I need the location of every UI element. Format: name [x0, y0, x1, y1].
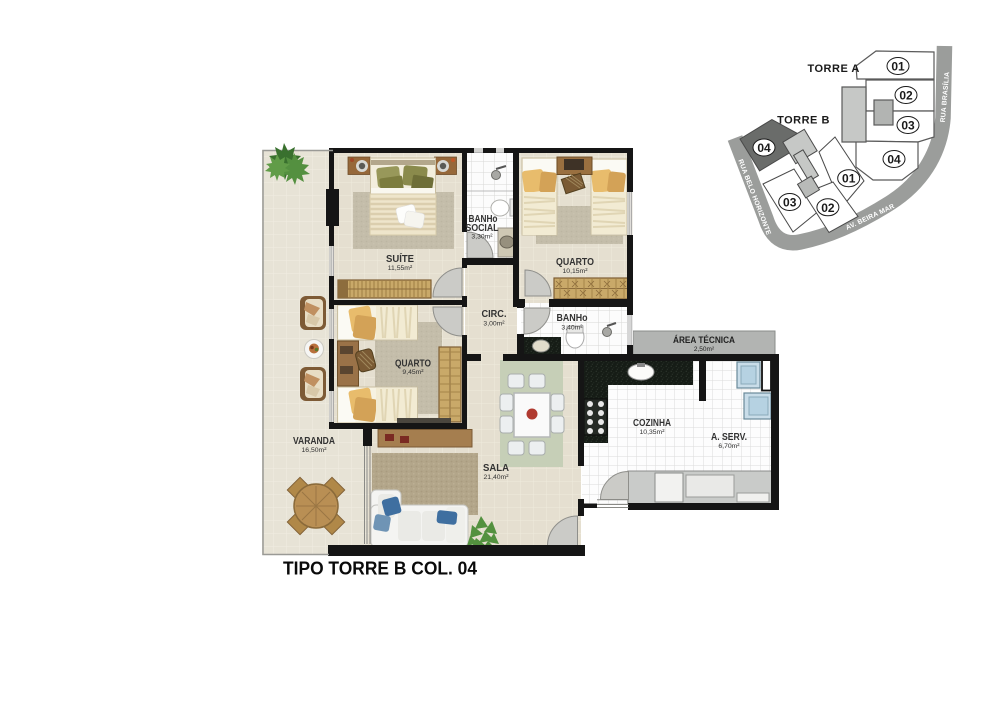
svg-text:TIPO TORRE B COL. 04: TIPO TORRE B COL. 04: [283, 559, 477, 579]
svg-text:QUARTO: QUARTO: [395, 359, 431, 370]
svg-text:02: 02: [899, 89, 913, 103]
svg-text:02: 02: [821, 201, 835, 215]
svg-text:03: 03: [783, 196, 797, 210]
svg-text:04: 04: [887, 153, 901, 167]
svg-text:SALA: SALA: [483, 463, 509, 474]
svg-text:COZINHA: COZINHA: [633, 418, 671, 429]
svg-text:21,40m²: 21,40m²: [484, 474, 510, 481]
svg-text:ÁREA TÉCNICA: ÁREA TÉCNICA: [673, 335, 735, 346]
svg-text:TORRE B: TORRE B: [777, 115, 830, 127]
svg-text:16,50m²: 16,50m²: [302, 447, 328, 454]
svg-text:01: 01: [891, 60, 905, 74]
svg-text:A. SERV.: A. SERV.: [711, 432, 747, 443]
svg-text:SUÍTE: SUÍTE: [386, 252, 414, 265]
svg-text:3,30m²: 3,30m²: [471, 234, 493, 241]
svg-text:SOCIAL: SOCIAL: [466, 223, 499, 234]
svg-text:10,15m²: 10,15m²: [563, 268, 589, 275]
svg-text:TORRE A: TORRE A: [807, 63, 859, 75]
svg-text:BANHo: BANHo: [557, 313, 588, 324]
svg-text:04: 04: [757, 141, 771, 155]
svg-text:2,50m²: 2,50m²: [694, 346, 715, 353]
svg-text:QUARTO: QUARTO: [556, 257, 594, 268]
svg-text:11,55m²: 11,55m²: [388, 265, 413, 272]
svg-text:03: 03: [901, 119, 915, 133]
svg-text:9,45m²: 9,45m²: [402, 369, 424, 376]
svg-text:10,35m²: 10,35m²: [640, 429, 666, 436]
svg-text:01: 01: [842, 172, 856, 186]
svg-text:3,40m²: 3,40m²: [561, 325, 583, 332]
svg-text:6,70m²: 6,70m²: [718, 443, 740, 450]
svg-text:3,00m²: 3,00m²: [483, 321, 505, 328]
svg-text:CIRC.: CIRC.: [482, 309, 507, 320]
svg-text:VARANDA: VARANDA: [293, 436, 335, 447]
